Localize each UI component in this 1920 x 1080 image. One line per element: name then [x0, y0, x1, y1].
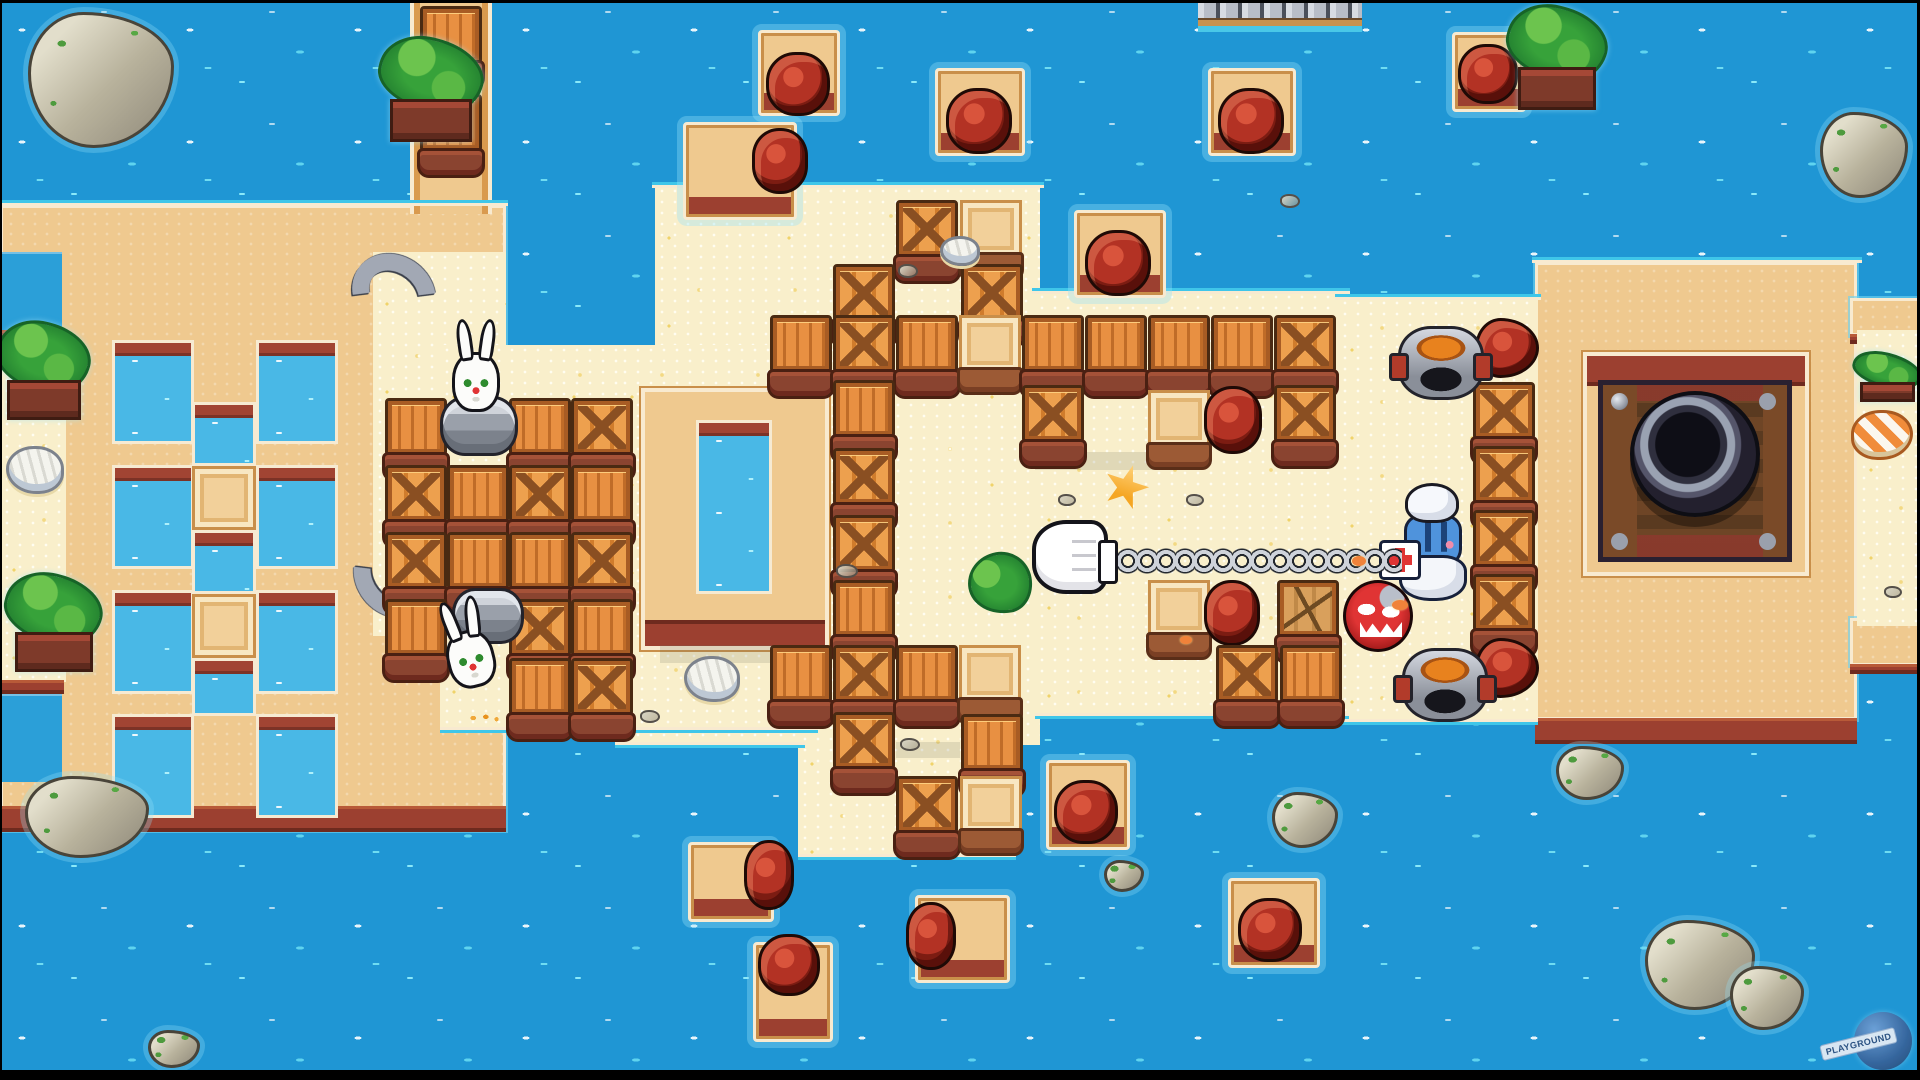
- red-barrel[interactable]: [1085, 230, 1151, 296]
- palm-planter: [8, 580, 100, 672]
- shell: [940, 236, 980, 266]
- pebble: [1884, 586, 1902, 598]
- maze-block: [192, 466, 256, 530]
- maze-pool-small: [192, 402, 256, 466]
- notch-edge: [0, 680, 64, 694]
- crate[interactable]: [1216, 645, 1278, 729]
- maze-pool: [112, 465, 194, 569]
- maze-pool-small: [192, 658, 256, 716]
- palm-planter: [0, 328, 88, 420]
- red-barrel[interactable]: [758, 934, 820, 996]
- maze-pool: [112, 340, 194, 444]
- crate[interactable]: [509, 658, 571, 742]
- rock: [1556, 746, 1624, 800]
- crate[interactable]: [770, 645, 832, 729]
- red-barrel[interactable]: [906, 902, 956, 970]
- pebble: [640, 710, 660, 723]
- crate[interactable]: [833, 712, 895, 796]
- right-arm-bottom-edge: [1850, 664, 1920, 674]
- red-barrel[interactable]: [1238, 898, 1302, 962]
- tan-block: [1148, 580, 1210, 660]
- waterline: [1335, 294, 1541, 300]
- center-pool: [696, 420, 772, 594]
- red-barrel[interactable]: [752, 128, 808, 194]
- pebble: [836, 564, 858, 578]
- red-barrel[interactable]: [1204, 386, 1262, 454]
- right-island-base-edge: [1535, 718, 1857, 744]
- waterline: [1532, 257, 1862, 263]
- crate[interactable]: [1274, 385, 1336, 469]
- rabbit-character[interactable]: [452, 352, 500, 412]
- rock: [1272, 792, 1338, 848]
- cannon[interactable]: [1598, 380, 1792, 562]
- boxing-fist[interactable]: [1032, 520, 1108, 594]
- red-barrel[interactable]: [766, 52, 830, 116]
- tan-block: [960, 776, 1022, 856]
- tan-block: [959, 315, 1021, 395]
- maze-pool: [112, 590, 194, 694]
- pebble: [1186, 494, 1204, 506]
- crate[interactable]: [1085, 315, 1147, 399]
- rock: [25, 776, 149, 858]
- pebble: [900, 738, 920, 751]
- maze-pool: [256, 340, 338, 444]
- crate[interactable]: [1022, 385, 1084, 469]
- pebble: [898, 264, 918, 278]
- red-barrel[interactable]: [946, 88, 1012, 154]
- game-arena[interactable]: PLAYGROUND: [0, 0, 1920, 1080]
- crate[interactable]: [1148, 315, 1210, 399]
- pebble: [1280, 194, 1300, 208]
- crate[interactable]: [571, 658, 633, 742]
- waterline: [0, 200, 508, 206]
- pebble: [1058, 494, 1076, 506]
- shell: [6, 446, 64, 494]
- spark: [1180, 636, 1192, 644]
- crate[interactable]: [896, 776, 958, 860]
- maze-pool: [256, 590, 338, 694]
- shell: [684, 656, 740, 702]
- maze-block: [192, 594, 256, 658]
- tan-block: [1148, 390, 1210, 470]
- cooking-pot[interactable]: [1398, 326, 1484, 400]
- red-bomb[interactable]: [1343, 580, 1413, 652]
- palm-planter: [1855, 356, 1920, 402]
- crate[interactable]: [896, 645, 958, 729]
- palm-planter: [1510, 12, 1604, 110]
- crate[interactable]: [770, 315, 832, 399]
- rock: [148, 1030, 200, 1068]
- palm-planter: [382, 44, 480, 142]
- maze-pool: [256, 465, 338, 569]
- red-barrel[interactable]: [1204, 580, 1260, 646]
- rock: [1104, 860, 1144, 892]
- metal-dock: [1198, 0, 1362, 32]
- maze-pool: [256, 714, 338, 818]
- rock: [1820, 112, 1908, 198]
- red-barrel[interactable]: [1218, 88, 1284, 154]
- crate[interactable]: [385, 599, 447, 683]
- spark: [1392, 600, 1408, 610]
- playground-watermark: PLAYGROUND: [1820, 1006, 1916, 1076]
- waterline: [615, 742, 805, 748]
- crate[interactable]: [1280, 645, 1342, 729]
- red-barrel[interactable]: [1054, 780, 1118, 844]
- carrot-crumbs: [466, 712, 502, 724]
- rock: [28, 12, 174, 148]
- water-notch: [0, 694, 62, 782]
- cooking-pot[interactable]: [1402, 648, 1488, 722]
- tan-block: [959, 645, 1021, 725]
- maze-pool-small: [192, 530, 256, 594]
- rock: [1730, 966, 1804, 1030]
- crate[interactable]: [896, 315, 958, 399]
- spark: [1352, 556, 1366, 566]
- red-barrel[interactable]: [744, 840, 794, 910]
